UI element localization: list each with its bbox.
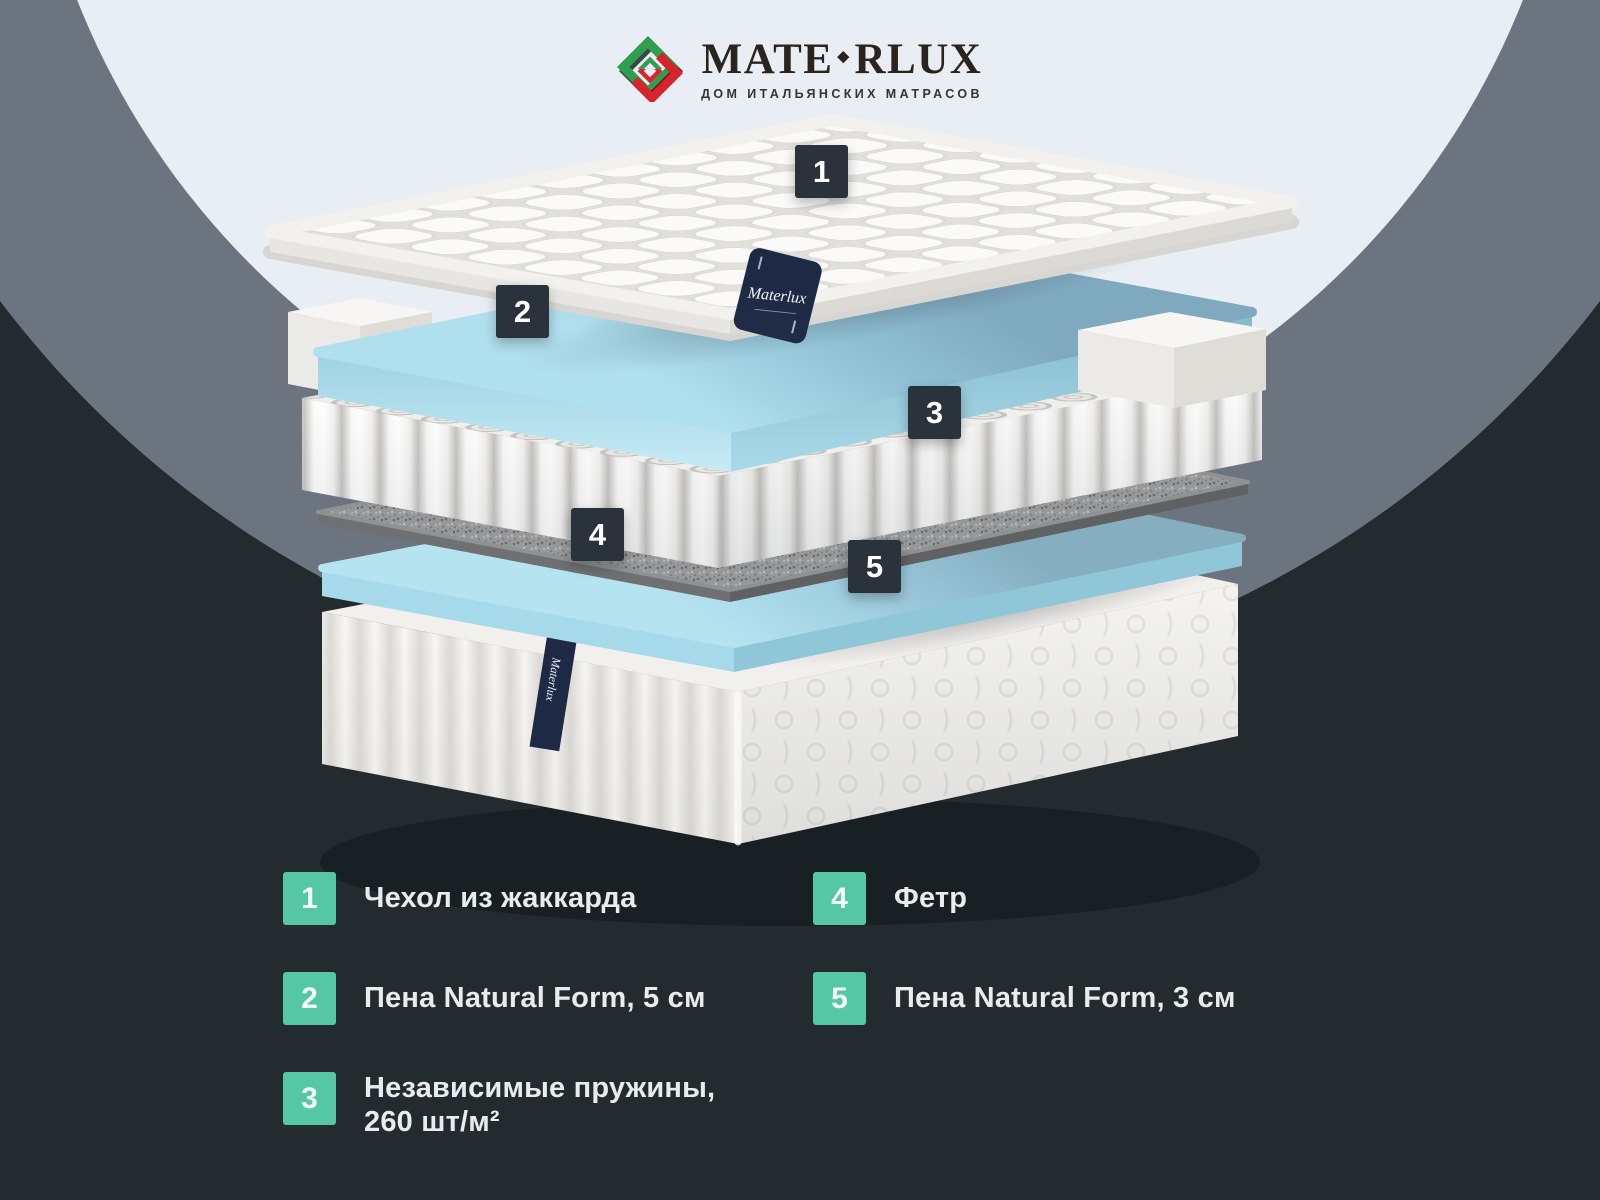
legend-item-3: 3 Независимые пружины, 260 шт/м² [283,1072,715,1140]
springs-border-right [1078,312,1266,408]
legend-num-2: 2 [283,972,336,1025]
brand-diamond-icon: ◆ [837,50,850,65]
legend-label-3-line2: 260 шт/м² [364,1106,715,1140]
legend-item-5: 5 Пена Natural Form, 3 см [813,972,1236,1025]
brand-header: MATE ◆ RLUX ДОМ ИТАЛЬЯНСКИХ МАТРАСОВ [0,36,1600,102]
legend-label-4-line1: Фетр [894,882,967,916]
legend-item-2: 2 Пена Natural Form, 5 см [283,972,706,1025]
legend-item-1: 1 Чехол из жаккарда [283,872,636,925]
legend-label-5: Пена Natural Form, 3 см [894,982,1236,1016]
legend-label-1: Чехол из жаккарда [364,882,636,916]
legend-label-5-line1: Пена Natural Form, 3 см [894,982,1236,1016]
brand-text-block: MATE ◆ RLUX ДОМ ИТАЛЬЯНСКИХ МАТРАСОВ [701,38,983,101]
legend-num-3: 3 [283,1072,336,1125]
legend-label-4: Фетр [894,882,967,916]
layer-marker-3: 3 [908,386,961,439]
legend-label-1-line1: Чехол из жаккарда [364,882,636,916]
legend-num-5: 5 [813,972,866,1025]
layer-marker-4: 4 [571,508,624,561]
legend-label-3: Независимые пружины, 260 шт/м² [364,1072,715,1140]
brand-name: MATE ◆ RLUX [702,38,983,81]
brand-name-left: MATE [702,38,834,81]
brand-name-right: RLUX [855,38,983,81]
legend-num-1: 1 [283,872,336,925]
legend-num-4: 4 [813,872,866,925]
legend-item-4: 4 Фетр [813,872,967,925]
brand-tagline: ДОМ ИТАЛЬЯНСКИХ МАТРАСОВ [701,87,983,101]
infographic-canvas: MATE ◆ RLUX ДОМ ИТАЛЬЯНСКИХ МАТРАСОВ [0,0,1600,1200]
legend-label-3-line1: Независимые пружины, [364,1072,715,1106]
layer-marker-5: 5 [848,540,901,593]
materlux-logo-icon [617,36,683,102]
legend-label-2: Пена Natural Form, 5 см [364,982,706,1016]
layer-marker-1: 1 [795,145,848,198]
legend-label-2-line1: Пена Natural Form, 5 см [364,982,706,1016]
layer-marker-2: 2 [496,285,549,338]
